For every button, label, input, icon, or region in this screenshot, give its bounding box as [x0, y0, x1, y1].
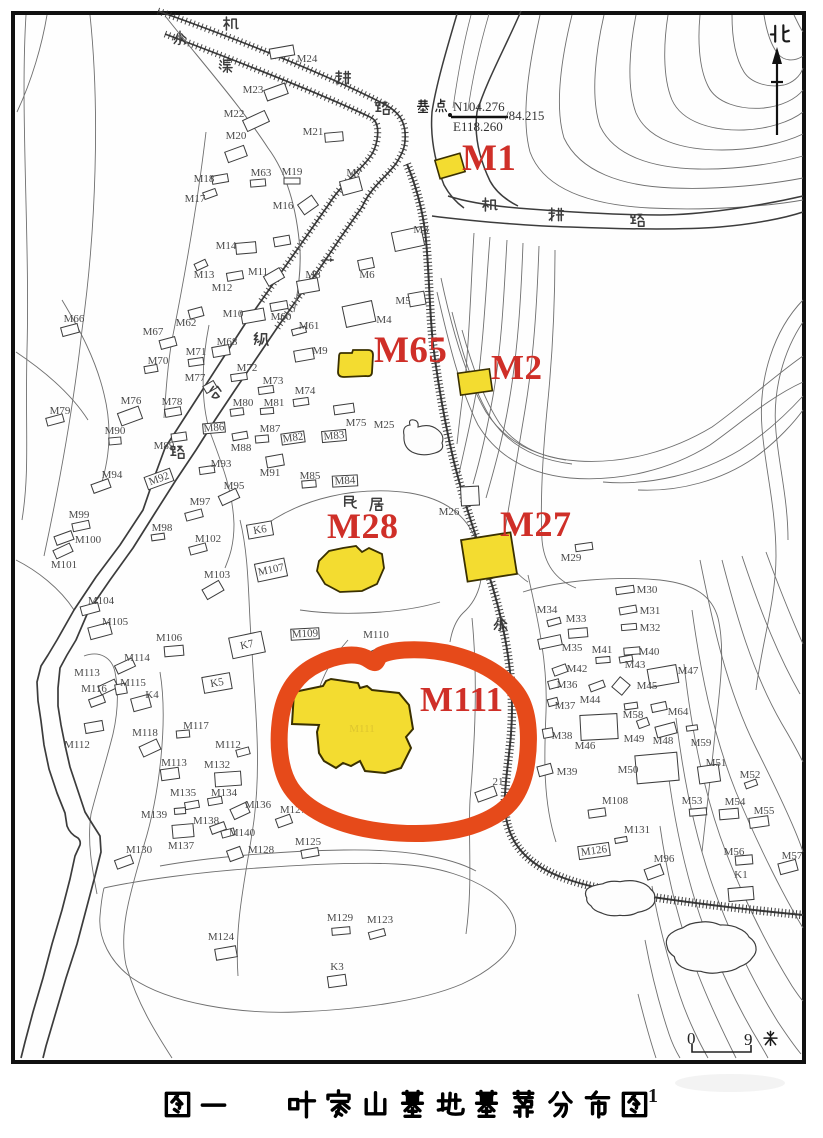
svg-text:M115: M115 — [120, 677, 146, 689]
svg-text:M105: M105 — [102, 616, 129, 628]
svg-text:M51: M51 — [706, 757, 727, 769]
svg-text:M139: M139 — [141, 809, 168, 821]
svg-text:M91: M91 — [260, 467, 281, 479]
svg-text:M138: M138 — [193, 815, 220, 827]
svg-text:M128: M128 — [248, 844, 275, 856]
svg-text:M131: M131 — [624, 824, 650, 836]
svg-text:M125: M125 — [295, 836, 322, 848]
svg-text:M34: M34 — [537, 604, 558, 616]
svg-text:M63: M63 — [251, 167, 272, 179]
svg-text:M68: M68 — [217, 336, 238, 348]
svg-text:M36: M36 — [557, 679, 578, 691]
svg-text:K1: K1 — [734, 869, 747, 881]
svg-text:M112: M112 — [215, 739, 241, 751]
svg-text:M132: M132 — [204, 759, 230, 771]
svg-text:M35: M35 — [562, 642, 583, 654]
svg-text:M13: M13 — [194, 269, 215, 281]
svg-text:M67: M67 — [143, 326, 164, 338]
svg-text:M73: M73 — [263, 375, 284, 387]
svg-text:1: 1 — [648, 1085, 658, 1107]
svg-text:M57: M57 — [782, 850, 803, 862]
svg-text:M72: M72 — [237, 362, 258, 374]
svg-text:M76: M76 — [121, 395, 142, 407]
svg-text:M7: M7 — [346, 167, 362, 179]
svg-text:M6: M6 — [359, 269, 375, 281]
svg-text:M53: M53 — [682, 795, 703, 807]
svg-text:M49: M49 — [624, 733, 645, 745]
svg-text:M5: M5 — [395, 295, 411, 307]
svg-text:M71: M71 — [186, 346, 207, 358]
svg-text:M25: M25 — [374, 419, 395, 431]
svg-text:M85: M85 — [300, 470, 321, 482]
svg-text:M98: M98 — [152, 522, 173, 534]
svg-text:M70: M70 — [148, 355, 169, 367]
svg-text:M65: M65 — [374, 330, 447, 371]
svg-text:M137: M137 — [168, 840, 195, 852]
svg-text:M23: M23 — [243, 84, 264, 96]
svg-text:M14: M14 — [216, 240, 237, 252]
svg-text:M102: M102 — [195, 533, 221, 545]
svg-text:M87: M87 — [260, 423, 281, 435]
svg-text:M94: M94 — [102, 469, 123, 481]
svg-text:M114: M114 — [124, 652, 150, 664]
svg-text:M2: M2 — [491, 348, 543, 387]
svg-text:M9: M9 — [312, 345, 328, 357]
svg-text:K3: K3 — [330, 961, 344, 973]
svg-text:M21: M21 — [303, 126, 324, 138]
svg-text:M74: M74 — [295, 385, 316, 397]
svg-text:M78: M78 — [162, 396, 183, 408]
svg-text:M136: M136 — [245, 799, 272, 811]
svg-text:M81: M81 — [264, 397, 285, 409]
svg-text:K4: K4 — [145, 689, 159, 701]
svg-text:M10: M10 — [223, 308, 244, 320]
svg-text:M56: M56 — [724, 846, 745, 858]
svg-text:K5: K5 — [209, 676, 225, 690]
svg-text:K6: K6 — [252, 523, 268, 537]
svg-text:M66: M66 — [64, 313, 85, 325]
svg-text:M48: M48 — [653, 735, 674, 747]
svg-text:M44: M44 — [580, 694, 601, 706]
svg-text:M42: M42 — [567, 663, 588, 675]
svg-text:M96: M96 — [654, 853, 675, 865]
svg-text:M24: M24 — [297, 53, 318, 65]
svg-text:M52: M52 — [740, 769, 761, 781]
svg-text:M60: M60 — [271, 311, 292, 323]
svg-text:M116: M116 — [81, 683, 107, 695]
svg-text:M135: M135 — [170, 787, 197, 799]
svg-text:M97: M97 — [190, 496, 211, 508]
svg-text:M129: M129 — [327, 912, 354, 924]
svg-text:E118.260: E118.260 — [453, 119, 503, 134]
svg-text:M134: M134 — [211, 787, 238, 799]
svg-text:M32: M32 — [640, 622, 661, 634]
svg-text:M55: M55 — [754, 805, 775, 817]
svg-text:M39: M39 — [557, 766, 578, 778]
svg-text:M90: M90 — [105, 425, 126, 437]
svg-text:M43: M43 — [625, 659, 646, 671]
svg-text:M103: M103 — [204, 569, 231, 581]
svg-text:M11: M11 — [248, 266, 268, 278]
svg-text:M100: M100 — [75, 534, 102, 546]
svg-text:M22: M22 — [224, 108, 245, 120]
svg-text:M80: M80 — [233, 397, 254, 409]
svg-text:M27: M27 — [500, 504, 571, 544]
svg-text:M77: M77 — [185, 372, 206, 384]
svg-text:M26: M26 — [439, 506, 460, 518]
svg-text:M109: M109 — [292, 627, 319, 640]
svg-text:M29: M29 — [561, 552, 582, 564]
svg-text:M20: M20 — [226, 130, 247, 142]
svg-text:M54: M54 — [725, 796, 746, 808]
svg-text:M28: M28 — [327, 506, 398, 546]
svg-text:M111: M111 — [420, 680, 504, 719]
svg-text:M130: M130 — [126, 844, 153, 856]
svg-text:M19: M19 — [282, 166, 303, 178]
svg-text:M79: M79 — [50, 405, 71, 417]
svg-text:M41: M41 — [592, 644, 613, 656]
svg-text:M83: M83 — [323, 429, 345, 443]
svg-text:M123: M123 — [367, 914, 394, 926]
svg-text:M3: M3 — [413, 224, 429, 236]
svg-text:M40: M40 — [639, 646, 660, 658]
svg-text:M64: M64 — [668, 706, 689, 718]
svg-text:M18: M18 — [194, 173, 215, 185]
svg-text:M8: M8 — [305, 269, 321, 281]
svg-text:M45: M45 — [637, 680, 658, 692]
svg-text:M124: M124 — [208, 931, 235, 943]
svg-text:/84.215: /84.215 — [505, 108, 544, 123]
svg-text:M110: M110 — [363, 629, 389, 641]
svg-text:M30: M30 — [637, 584, 658, 596]
svg-text:M88: M88 — [231, 442, 252, 454]
svg-text:M118: M118 — [132, 727, 158, 739]
svg-text:M95: M95 — [224, 480, 245, 492]
svg-text:M113: M113 — [161, 757, 187, 769]
svg-text:N104.276: N104.276 — [453, 99, 505, 114]
svg-text:M47: M47 — [678, 665, 699, 677]
svg-text:M61: M61 — [299, 320, 320, 332]
svg-text:M33: M33 — [566, 613, 587, 625]
svg-text:M1: M1 — [462, 138, 516, 179]
svg-text:M117: M117 — [183, 720, 209, 732]
svg-text:M112: M112 — [64, 739, 90, 751]
svg-text:M104: M104 — [88, 595, 115, 607]
svg-text:M108: M108 — [602, 795, 629, 807]
svg-text:M140: M140 — [229, 827, 256, 839]
svg-text:21: 21 — [493, 776, 504, 788]
svg-text:M31: M31 — [640, 605, 661, 617]
svg-text:M4: M4 — [376, 314, 392, 326]
svg-text:M111: M111 — [349, 723, 374, 735]
svg-text:M86: M86 — [203, 421, 225, 435]
svg-text:M99: M99 — [69, 509, 90, 521]
svg-text:M101: M101 — [51, 559, 77, 571]
svg-text:M50: M50 — [618, 764, 639, 776]
svg-text:M75: M75 — [346, 417, 367, 429]
svg-text:M17: M17 — [185, 193, 206, 205]
svg-text:M84: M84 — [334, 474, 356, 487]
svg-text:M59: M59 — [691, 737, 712, 749]
svg-text:M46: M46 — [575, 740, 596, 752]
svg-text:M37: M37 — [555, 700, 576, 712]
svg-text:M16: M16 — [273, 200, 294, 212]
svg-text:M106: M106 — [156, 632, 183, 644]
svg-text:M38: M38 — [552, 730, 573, 742]
svg-text:M113: M113 — [74, 667, 100, 679]
svg-text:M12: M12 — [212, 282, 233, 294]
svg-text:M93: M93 — [211, 458, 232, 470]
svg-text:M62: M62 — [176, 317, 197, 329]
